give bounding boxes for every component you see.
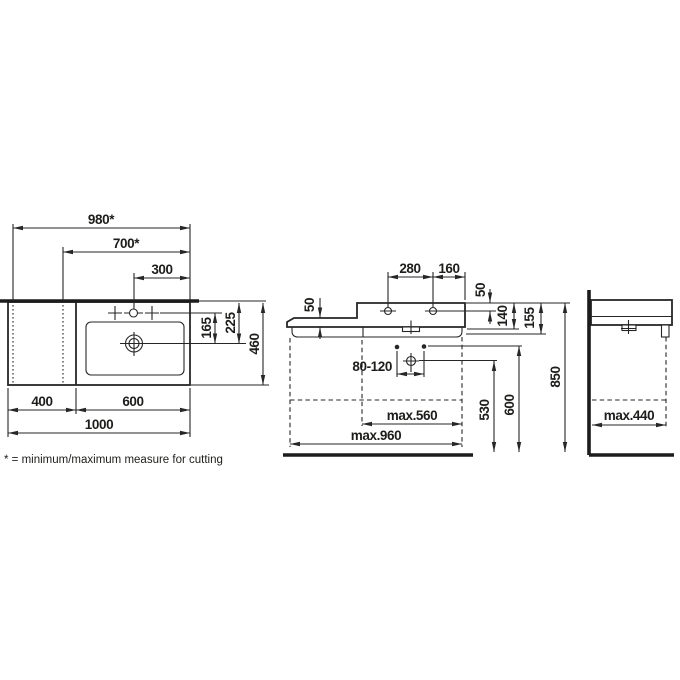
dim-600v-label: 600	[502, 394, 517, 415]
dim-300-label: 300	[151, 262, 172, 277]
dim-max440-label: max.440	[604, 408, 655, 423]
front-mount-point-right	[422, 344, 427, 349]
plan-view: 980* 700* 300 165 225 460 400 600 1000 *…	[0, 212, 269, 466]
dim-50-left-label: 50	[302, 298, 317, 312]
side-front-flange	[662, 325, 670, 337]
drawing-canvas: 980* 700* 300 165 225 460 400 600 1000 *…	[0, 0, 680, 680]
dim-400-label: 400	[31, 394, 52, 409]
dim-50-right-label: 50	[473, 283, 488, 297]
dim-530-label: 530	[477, 399, 492, 420]
dim-80-120-label: 80-120	[352, 359, 392, 374]
dim-155-label: 155	[522, 306, 537, 328]
plan-tap-hole	[130, 309, 138, 317]
dim-140-label: 140	[495, 305, 510, 326]
front-view: 280 160 50 50 140 155 80-120 max.560 max…	[283, 261, 570, 455]
technical-drawing-page: 980* 700* 300 165 225 460 400 600 1000 *…	[0, 0, 680, 680]
front-drain-outlet-cross	[403, 353, 419, 372]
front-mount-point-left	[395, 345, 400, 350]
dim-225-label: 225	[223, 311, 238, 333]
dim-max560-label: max.560	[387, 408, 438, 423]
dim-600-label: 600	[122, 394, 143, 409]
dim-165-label: 165	[199, 316, 214, 338]
dim-460-label: 460	[247, 333, 262, 354]
side-basin-body	[591, 300, 672, 325]
dim-max960-label: max.960	[351, 428, 402, 443]
dim-280-label: 280	[399, 261, 420, 276]
dim-160-label: 160	[438, 261, 459, 276]
dim-850-label: 850	[548, 366, 563, 387]
dim-980-label: 980*	[88, 212, 115, 227]
cutting-footnote: * = minimum/maximum measure for cutting	[4, 454, 223, 466]
dim-700-label: 700*	[113, 236, 140, 251]
dim-1000-label: 1000	[85, 417, 113, 432]
front-underframe	[292, 327, 462, 337]
side-view: max.440	[589, 290, 674, 455]
